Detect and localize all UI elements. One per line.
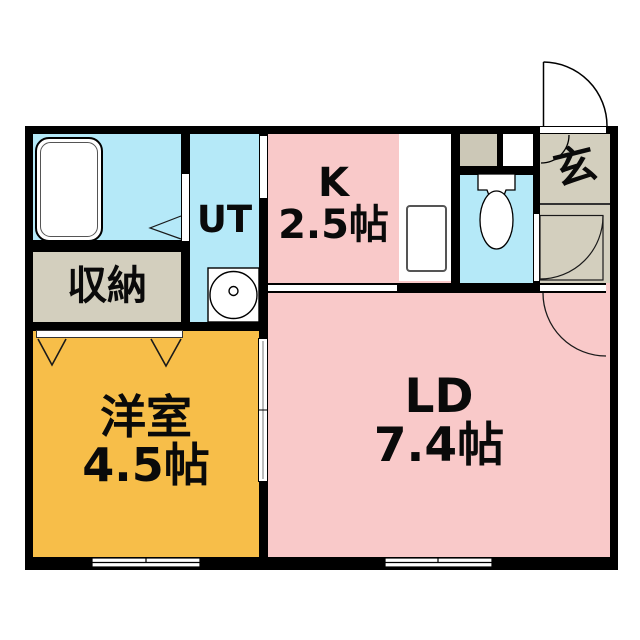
toilet-doorway	[534, 214, 539, 281]
kitchen-ld-open-boundary	[268, 283, 397, 293]
western-name: 洋室	[33, 393, 259, 441]
entrance-doorway	[540, 126, 606, 134]
pipe-shaft	[460, 134, 497, 166]
wall-outer-right	[610, 126, 618, 570]
wall-toilet-shaft	[497, 134, 503, 166]
room-label-western: 洋室 4.5帖	[33, 393, 259, 490]
hall-ld-doorway	[540, 283, 606, 293]
kitchen-name: K	[268, 162, 399, 204]
room-label-utility: UT	[190, 201, 259, 240]
room-label-storage: 収納	[33, 265, 181, 307]
wall-toilet-ld	[397, 283, 540, 293]
ld-name: LD	[268, 372, 610, 421]
wall-bath-storage	[25, 240, 190, 252]
ld-size: 7.4帖	[268, 421, 610, 470]
sliding-door-icon	[258, 338, 268, 482]
room-label-entrance: 玄	[540, 145, 610, 189]
wall-outer-top	[25, 126, 618, 134]
wall-outer-left	[25, 126, 33, 570]
closet-frame	[36, 330, 183, 338]
kitchen-size: 2.5帖	[268, 204, 399, 246]
entrance-step-line	[540, 203, 610, 205]
wall-toilet-top	[460, 166, 533, 175]
entrance-name: 玄	[549, 141, 600, 194]
room-label-living-dining: LD 7.4帖	[268, 372, 610, 471]
entrance-door-icon	[544, 62, 608, 126]
western-size: 4.5帖	[33, 441, 259, 489]
bathroom-doorway	[182, 174, 189, 241]
utility-kitchen-doorway	[260, 136, 267, 198]
room-label-kitchen: K 2.5帖	[268, 162, 399, 246]
wall-kitchen-toilet	[451, 126, 460, 293]
kitchen-sink-icon	[406, 205, 447, 272]
floor-plan: UT 収納 K 2.5帖 玄 洋室 4.5帖 LD 7.4帖	[0, 0, 640, 640]
toilet-shelf	[503, 134, 533, 166]
room-bathroom	[33, 134, 181, 244]
wall-outer-bottom	[25, 557, 618, 570]
